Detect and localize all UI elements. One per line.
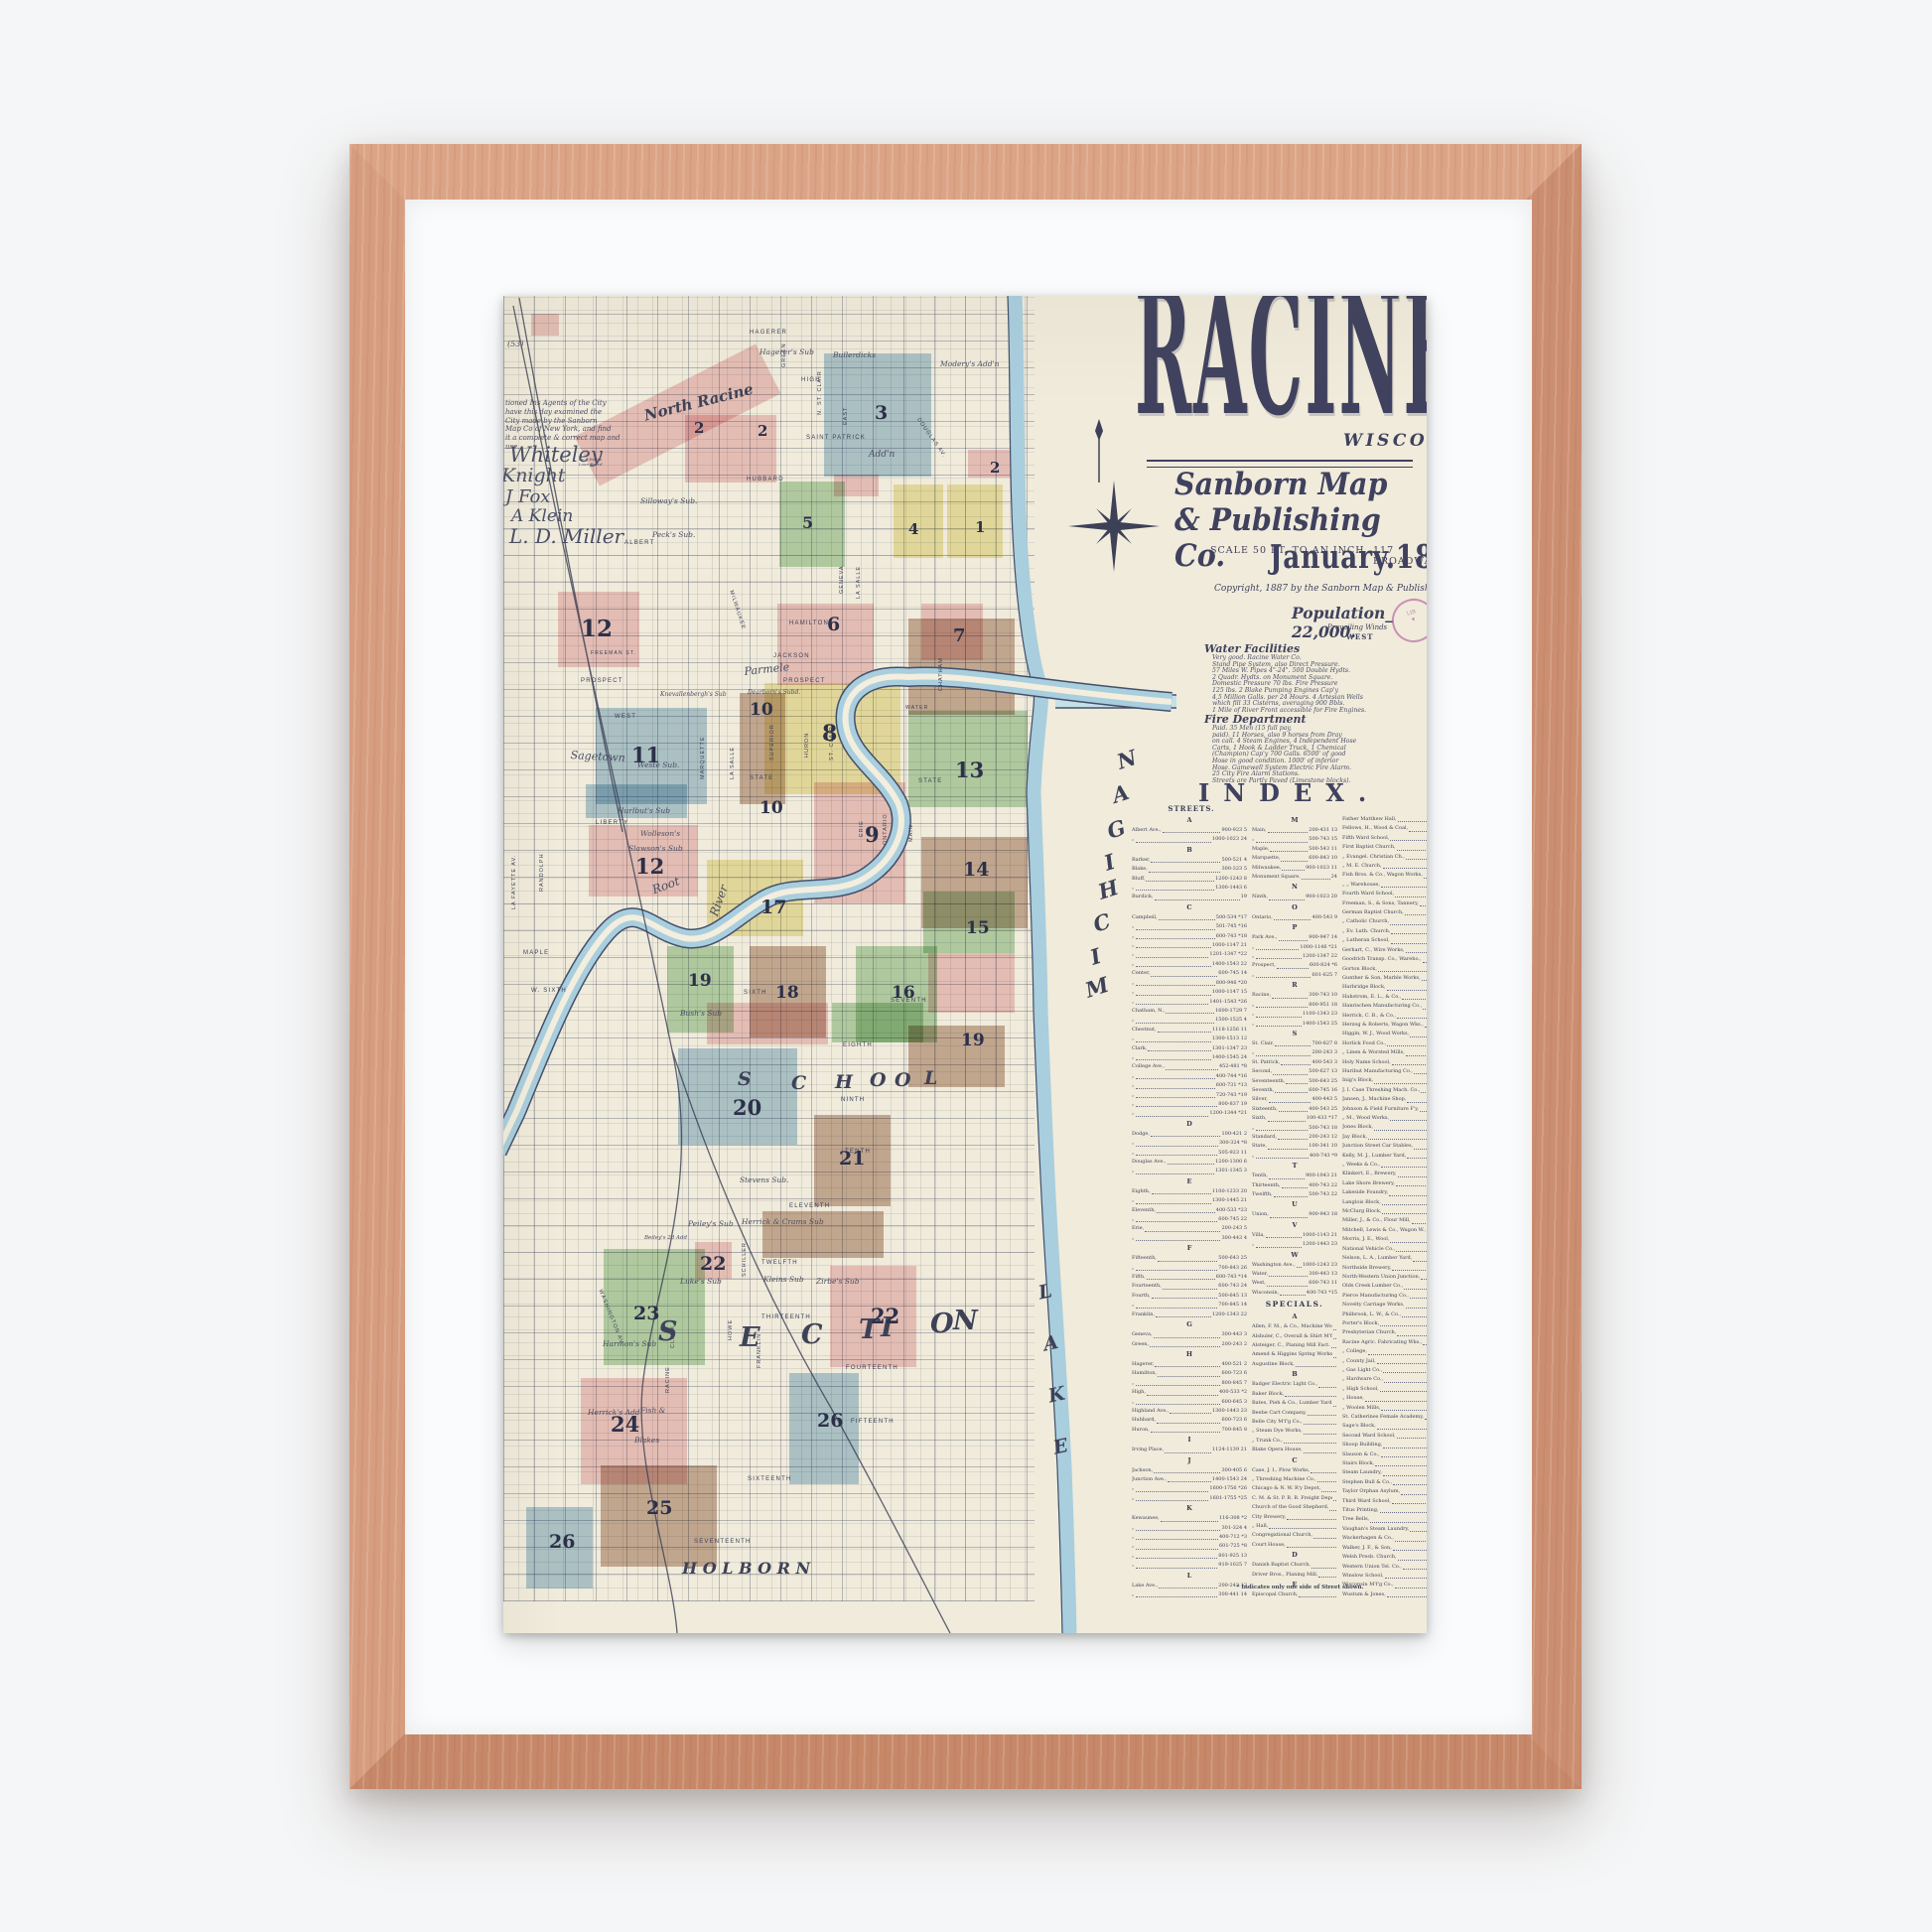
index-row: „ County Jail,13 bbox=[1342, 1357, 1427, 1366]
index-cell: Chicago & N. W. R'y Depot, bbox=[1252, 1484, 1320, 1493]
index-row: Langlois Block,13 bbox=[1342, 1198, 1427, 1207]
index-cell: „ bbox=[1252, 1001, 1255, 1010]
index-cell bbox=[1414, 1073, 1427, 1074]
index-cell bbox=[1387, 1596, 1427, 1597]
index-cell: 300-443 13 bbox=[1309, 1270, 1337, 1279]
index-cell bbox=[1256, 949, 1300, 950]
index-cell: Franklin, bbox=[1132, 1311, 1155, 1319]
index-cell bbox=[1136, 1240, 1221, 1241]
street-label: HOWE bbox=[728, 1319, 734, 1340]
index-cell bbox=[1256, 1130, 1309, 1131]
index-row: Holy Name School,9 bbox=[1342, 1058, 1427, 1067]
index-row: Bates, Pieh & Co., Lumber Yard bbox=[1252, 1399, 1337, 1408]
fire-department-text: Paid. 35 Men (15 full pay,paid). 11 Hors… bbox=[1212, 726, 1356, 784]
index-row: Taylor Orphan Asylum,26 bbox=[1342, 1487, 1427, 1496]
handwritten-note: Whiteley bbox=[509, 443, 603, 467]
index-row: „300-324 *8 bbox=[1132, 1139, 1247, 1148]
index-row: Geneva,300-443 3 bbox=[1132, 1330, 1247, 1339]
index-row: Huron,700-845 8 bbox=[1132, 1426, 1247, 1435]
index-row: College Ave.,452-481 *8 bbox=[1132, 1062, 1247, 1071]
district-number: 12 bbox=[635, 854, 664, 879]
index-cell: 1100-1343 23 bbox=[1303, 1010, 1337, 1019]
index-cell bbox=[1161, 1521, 1218, 1522]
index-section-letter: S bbox=[1252, 1029, 1337, 1039]
index-cell bbox=[1392, 1064, 1427, 1065]
index-cell: Racine Agric. Fabricating Wks., bbox=[1342, 1338, 1422, 1347]
index-cell bbox=[1412, 1223, 1427, 1224]
index-column-3: Father Matthew Hall,11Fellows, H., Wood … bbox=[1342, 815, 1427, 1599]
index-row: „1100-1343 23 bbox=[1252, 1010, 1337, 1019]
district-number: 15 bbox=[966, 918, 990, 938]
street-label: LA SALLE bbox=[856, 566, 862, 599]
area-name-letter: O bbox=[895, 1069, 911, 1091]
index-cell: 1400-1543 22 bbox=[1212, 960, 1247, 969]
index-cell: Herzog & Roberts, Wagon Wks., bbox=[1342, 1021, 1424, 1030]
index-cell: 500-645 13 bbox=[1218, 1292, 1247, 1301]
index-row: „ High School,12 bbox=[1342, 1385, 1427, 1394]
index-row: Maple,500-543 11 bbox=[1252, 845, 1337, 854]
index-cell: 301-324 4 bbox=[1221, 1524, 1247, 1533]
index-cell: 1400-1545 24 bbox=[1212, 1053, 1247, 1062]
district-number: 26 bbox=[817, 1410, 843, 1432]
index-section-letter: J bbox=[1132, 1455, 1247, 1466]
index-row: Welsh Presb. Church,12 bbox=[1342, 1553, 1427, 1562]
index-cell: 919-1025 7 bbox=[1218, 1561, 1247, 1570]
index-cell: Seventh, bbox=[1252, 1086, 1274, 1095]
index-cell: Albert Ave., bbox=[1132, 826, 1162, 835]
index-cell bbox=[1425, 1419, 1427, 1420]
index-cell bbox=[1398, 1176, 1427, 1177]
index-cell: Case, J. I., Plow Works, bbox=[1252, 1466, 1310, 1475]
index-cell bbox=[1136, 1549, 1218, 1550]
index-row: Harbridge Block,14 bbox=[1342, 983, 1427, 992]
index-row: Prospect,600-824 *6 bbox=[1252, 961, 1337, 970]
subdivision-label: Harmon's Sub bbox=[603, 1339, 656, 1348]
index-cell: „ bbox=[1132, 1590, 1135, 1599]
index-row: Seventh,600-745 16 bbox=[1252, 1086, 1337, 1095]
index-cell bbox=[1377, 1363, 1427, 1364]
index-cell: Gerhart, C., Wire Works, bbox=[1342, 946, 1405, 955]
index-row: Episcopal Church, bbox=[1252, 1590, 1337, 1599]
index-row: McClurg Block,14 bbox=[1342, 1207, 1427, 1216]
subdivision-label: Herrick & Crams Sub bbox=[742, 1217, 824, 1226]
index-cell: National Vehicle Co., bbox=[1342, 1245, 1395, 1254]
index-cell: Dodge, bbox=[1132, 1130, 1150, 1139]
index-cell bbox=[1136, 947, 1211, 948]
index-row: Park Ave.,900-947 14 bbox=[1252, 933, 1337, 942]
index-cell bbox=[1136, 1539, 1218, 1540]
index-cell: 600-745 16 bbox=[1309, 1086, 1337, 1095]
index-row: Western Union Tel. Co.,14 bbox=[1342, 1563, 1427, 1572]
index-cell: 400-521 2 bbox=[1221, 1360, 1247, 1369]
index-cell: Church of the Good Shepherd, bbox=[1252, 1503, 1328, 1512]
index-cell bbox=[1281, 861, 1308, 862]
index-cell: Fellows, H., Wood & Coal, bbox=[1342, 824, 1408, 833]
index-row: Johnson & Field Furniture F'y,16 bbox=[1342, 1105, 1427, 1114]
index-cell: Father Matthew Hall, bbox=[1342, 815, 1397, 824]
street-label: SUPERIOR bbox=[769, 724, 775, 760]
index-row: Fourth Ward School,6 bbox=[1342, 890, 1427, 898]
index-row: Fifth,600-743 *14 bbox=[1132, 1273, 1247, 1282]
index-cell: „ bbox=[1132, 1016, 1135, 1025]
index-cell: Main, bbox=[1252, 826, 1267, 835]
index-cell: 1300-1443 6 bbox=[1215, 884, 1247, 893]
index-cell: „ bbox=[1132, 1561, 1135, 1570]
index-cell: „ bbox=[1252, 1240, 1255, 1249]
index-cell: „ Linen & Worsted Mills, bbox=[1342, 1048, 1405, 1057]
street-label: LA SALLE bbox=[730, 747, 736, 779]
index-row: Walker, J. F., & Son,13 bbox=[1342, 1544, 1427, 1553]
index-cell: Washington Ave., bbox=[1252, 1261, 1296, 1270]
index-row: Court House, bbox=[1252, 1541, 1337, 1550]
index-row: Junction Ave.,1400-1543 24 bbox=[1132, 1475, 1247, 1484]
index-row: „601-625 7 bbox=[1252, 971, 1337, 980]
index-cell: 24 bbox=[1331, 873, 1337, 882]
street-label: MARQUETTE bbox=[700, 736, 706, 779]
street-label: NINTH bbox=[841, 1097, 865, 1103]
index-cell: 100-341 10 bbox=[1309, 1142, 1337, 1151]
street-label: PROSPECT bbox=[783, 678, 826, 684]
index-row: North-Western Union Junction,23 bbox=[1342, 1273, 1427, 1282]
index-cell: Irving Place, bbox=[1132, 1446, 1164, 1454]
index-cell bbox=[1401, 1494, 1427, 1495]
index-row: Huribut Manufacturing Co.,11 bbox=[1342, 1067, 1427, 1076]
index-cell: Prospect, bbox=[1252, 961, 1276, 970]
index-cell: „ bbox=[1132, 988, 1135, 997]
street-label: CHATHAM bbox=[938, 657, 944, 691]
area-name-letter: O bbox=[930, 1309, 954, 1339]
index-cell: Second, bbox=[1252, 1067, 1272, 1076]
index-row: Douglas Ave.,1200-1300 6 bbox=[1132, 1158, 1247, 1167]
index-row: „801-925 13 bbox=[1132, 1552, 1247, 1561]
index-cell: 500-743 15 bbox=[1309, 835, 1337, 844]
index-row: „ Woolen Mills,10 bbox=[1342, 1404, 1427, 1413]
index-cell: Congregational Church, bbox=[1252, 1531, 1312, 1540]
index-cell: „ bbox=[1132, 1264, 1135, 1273]
index-cell bbox=[1136, 938, 1215, 939]
index-cell: Stairs Block, bbox=[1342, 1459, 1374, 1468]
index-cell bbox=[1158, 1032, 1211, 1033]
index-cell: „ bbox=[1132, 1301, 1135, 1310]
index-row: „800-946 *20 bbox=[1132, 979, 1247, 988]
index-cell bbox=[1136, 1106, 1218, 1107]
index-row: „601-725 *8 bbox=[1132, 1542, 1247, 1551]
subdivision-label: Zirbe's Sub bbox=[816, 1277, 860, 1286]
street-label: ONTARIO bbox=[883, 813, 889, 845]
index-cell: Chatham, N., bbox=[1132, 1007, 1165, 1016]
index-cell bbox=[1151, 1136, 1220, 1137]
index-row: Junction Street Car Stables,24 bbox=[1342, 1142, 1427, 1151]
index-row: Second Ward School,7 bbox=[1342, 1432, 1427, 1441]
index-cell: Augustine Block, bbox=[1252, 1360, 1295, 1369]
index-column-2: MMain,200-431 13„500-743 15Maple,500-543… bbox=[1252, 815, 1337, 1599]
index-cell bbox=[1151, 976, 1217, 977]
index-cell: „ bbox=[1132, 941, 1135, 950]
index-cell: „ County Jail, bbox=[1342, 1357, 1376, 1366]
index-row: Tree Bells,13 bbox=[1342, 1515, 1427, 1524]
index-row: Blake Opera House, bbox=[1252, 1446, 1337, 1454]
street-label: N. ST. CLAIR bbox=[817, 370, 823, 415]
index-row: Olds Creek Lumber Co.,16 bbox=[1342, 1282, 1427, 1291]
index-cell bbox=[1168, 1164, 1215, 1165]
index-cell: Baker Block, bbox=[1252, 1390, 1284, 1399]
index-row: Jansen, J., Machine Shop,14 bbox=[1342, 1095, 1427, 1104]
index-cell bbox=[1269, 1528, 1336, 1529]
index-row: Kewaunee,116-308 *2 bbox=[1132, 1514, 1247, 1523]
index-cell bbox=[1422, 980, 1427, 981]
district-number: 9 bbox=[865, 822, 880, 847]
index-cell: Third Ward School, bbox=[1342, 1497, 1391, 1506]
index-cell bbox=[1331, 1347, 1336, 1348]
index-cell: Harbridge Block, bbox=[1342, 983, 1386, 992]
index-cell: 1300-1445 21 bbox=[1212, 1196, 1247, 1205]
index-row: Water,300-443 13 bbox=[1252, 1270, 1337, 1279]
index-cell: Villa, bbox=[1252, 1231, 1265, 1240]
index-cell: „ bbox=[1252, 943, 1255, 952]
index-cell bbox=[1413, 1261, 1427, 1262]
index-cell: „ bbox=[1132, 1542, 1135, 1551]
index-row: „1000-1147 15 bbox=[1132, 988, 1247, 997]
index-cell bbox=[1269, 1178, 1305, 1179]
index-row: „1200-1347 22 bbox=[1252, 952, 1337, 961]
index-cell bbox=[1136, 1116, 1209, 1117]
index-cell: Standard, bbox=[1252, 1133, 1277, 1142]
index-cell: 600-645 3 bbox=[1221, 1398, 1247, 1407]
index-cell bbox=[1136, 985, 1215, 986]
district-number: 12 bbox=[581, 616, 613, 642]
index-cell: Kelly, M. J., Lumber Yard, bbox=[1342, 1152, 1406, 1161]
index-row: Silver,400-443 5 bbox=[1252, 1095, 1337, 1104]
index-cell: Geneva, bbox=[1132, 1330, 1153, 1339]
index-row: Eleventh,400-533 *23 bbox=[1132, 1206, 1247, 1215]
index-cell bbox=[1148, 1050, 1210, 1051]
index-cell bbox=[1256, 1158, 1309, 1159]
index-cell: 200-243 5 bbox=[1221, 1224, 1247, 1233]
subdivision-label: (53) bbox=[507, 340, 523, 348]
index-cell bbox=[1390, 1242, 1427, 1243]
index-cell bbox=[1279, 940, 1309, 941]
index-cell: 1200-1347 22 bbox=[1303, 952, 1337, 961]
index-cell: Tenth, bbox=[1252, 1172, 1268, 1180]
index-section-letter: B bbox=[1252, 1369, 1337, 1380]
index-row: „1400-1545 24 bbox=[1132, 1053, 1247, 1062]
index-cell bbox=[1136, 1097, 1215, 1098]
index-row: „301-324 4 bbox=[1132, 1524, 1247, 1533]
index-row: „ House,13 bbox=[1342, 1394, 1427, 1403]
index-cell bbox=[1147, 1279, 1215, 1280]
index-cell: „ bbox=[1132, 1035, 1135, 1043]
index-row: Stairs Block,13 bbox=[1342, 1459, 1427, 1468]
index-cell: „ Weeks & Co., bbox=[1342, 1161, 1380, 1170]
index-cell bbox=[1136, 1173, 1214, 1174]
index-section-letter: P bbox=[1252, 922, 1337, 933]
index-cell: Gorton Block, bbox=[1342, 965, 1377, 974]
index-cell bbox=[1155, 899, 1240, 900]
index-row: Hagerer,400-521 2 bbox=[1132, 1360, 1247, 1369]
index-cell: 800-951 18 bbox=[1309, 1001, 1337, 1010]
index-cell: „ bbox=[1132, 1398, 1135, 1407]
index-cell bbox=[1256, 1007, 1309, 1008]
index-cell: 1300-1513 12 bbox=[1212, 1035, 1247, 1043]
index-cell: Green, bbox=[1132, 1340, 1149, 1349]
index-cell: Milwaukee, bbox=[1252, 864, 1281, 873]
index-cell bbox=[1392, 1503, 1427, 1504]
subdivision-label: Bullerdicks bbox=[833, 350, 876, 359]
specials-header: SPECIALS. bbox=[1252, 1298, 1337, 1311]
index-cell: Pierce Manufacturing Co., bbox=[1342, 1292, 1409, 1301]
index-section-letter: F bbox=[1132, 1243, 1247, 1254]
index-cell bbox=[1166, 1013, 1214, 1014]
index-cell: 801-925 13 bbox=[1218, 1552, 1247, 1561]
compass-rose-icon bbox=[1068, 481, 1160, 572]
index-cell bbox=[1383, 868, 1427, 869]
index-cell bbox=[1136, 1041, 1211, 1042]
index-cell bbox=[1152, 1298, 1218, 1299]
index-cell bbox=[1151, 862, 1220, 863]
district-number: 8 bbox=[822, 721, 837, 747]
index-cell: Hamilton, bbox=[1132, 1369, 1157, 1378]
index-row: „ Threshing Machine Co., bbox=[1252, 1475, 1337, 1484]
index-cell: „ bbox=[1132, 884, 1135, 893]
index-cell: Lake Shore Brewery, bbox=[1342, 1179, 1395, 1188]
subdivision-label: Slawson's Sub bbox=[628, 844, 683, 853]
index-cell: Badger Electric Light Co., bbox=[1252, 1380, 1317, 1389]
map-sheet: HAGERERHIGHSAINT PATRICKALBERTFREEMAN ST… bbox=[503, 296, 1427, 1633]
street-label: JACKSON bbox=[773, 653, 810, 659]
index-row: Eighth,1100-1233 20 bbox=[1132, 1187, 1247, 1196]
index-cell: Vaughan's Steam Laundry, bbox=[1342, 1525, 1409, 1534]
index-row: Novelty Carriage Works,18 bbox=[1342, 1301, 1427, 1310]
index-cell bbox=[1329, 1510, 1336, 1511]
index-cell bbox=[1147, 1395, 1218, 1396]
index-cell: Erie, bbox=[1132, 1224, 1144, 1233]
index-row: Union,900-943 18 bbox=[1252, 1210, 1337, 1219]
street-label: MAPLE bbox=[523, 950, 549, 956]
index-cell: Walker, J. F., & Son, bbox=[1342, 1544, 1392, 1553]
index-row: „1300-1445 21 bbox=[1132, 1196, 1247, 1205]
index-cell: 300-323 5 bbox=[1221, 865, 1247, 874]
index-cell: „ bbox=[1132, 1091, 1135, 1100]
index-row: „501-745 *16 bbox=[1132, 922, 1247, 931]
index-cell bbox=[1281, 1064, 1311, 1065]
index-row: Inig's Block,15 bbox=[1342, 1076, 1427, 1085]
index-cell bbox=[1282, 1187, 1309, 1188]
index-row: „300-443 4 bbox=[1132, 1234, 1247, 1243]
index-cell: 300-443 3 bbox=[1221, 1330, 1247, 1339]
index-cell bbox=[1424, 878, 1427, 879]
index-row: Alsteiger, C., Planing Mill Fact. bbox=[1252, 1341, 1337, 1350]
index-row: Barker,500-521 4 bbox=[1132, 856, 1247, 865]
index-cell bbox=[1268, 832, 1309, 833]
index-row: Amend & Higgins Spring Works bbox=[1252, 1350, 1337, 1359]
index-row: Racine Agric. Fabricating Wks.,22 bbox=[1342, 1338, 1427, 1347]
index-row: Wustum & Jones,13 bbox=[1342, 1590, 1427, 1599]
index-cell: 200-243 12 bbox=[1309, 1133, 1337, 1142]
index-row: Main,200-431 13 bbox=[1252, 826, 1337, 835]
index-row: Sixth,100-433 *17 bbox=[1252, 1114, 1337, 1123]
index-cell bbox=[1333, 1338, 1336, 1339]
index-cell: Klinkert, E., Brewery, bbox=[1342, 1170, 1397, 1178]
index-row: Case, J. I., Plow Works, bbox=[1252, 1466, 1337, 1475]
index-row: „ Hall, bbox=[1252, 1522, 1337, 1531]
subdivision-label: Dearborn's Subd. bbox=[748, 689, 800, 696]
subdivision-label: Beiley's 2d Add bbox=[644, 1235, 687, 1241]
index-cell bbox=[1266, 1237, 1302, 1238]
index-cell: Monument Square, bbox=[1252, 873, 1301, 882]
index-cell: 1124-1139 21 bbox=[1212, 1446, 1247, 1454]
index-section-letter: I bbox=[1132, 1435, 1247, 1446]
index-row: Ninth,900-1023 20 bbox=[1252, 893, 1337, 901]
index-cell: West, bbox=[1252, 1279, 1266, 1288]
index-cell: Seventeenth, bbox=[1252, 1077, 1285, 1086]
index-cell: 1300-1443 23 bbox=[1212, 1407, 1247, 1416]
framed-map-poster-photo: HAGERERHIGHSAINT PATRICKALBERTFREEMAN ST… bbox=[0, 0, 1932, 1932]
street-label: SCHILLER bbox=[742, 1242, 748, 1277]
index-cell: College Ave., bbox=[1132, 1062, 1165, 1071]
handwritten-note: L. D. Miller bbox=[509, 524, 623, 548]
index-cell bbox=[1387, 990, 1427, 991]
index-cell: Presbyterian Church, bbox=[1342, 1328, 1396, 1337]
index-cell: Center, bbox=[1132, 969, 1150, 978]
index-cell: „ bbox=[1252, 835, 1255, 844]
index-row: Northside Brewery,2 bbox=[1342, 1264, 1427, 1273]
index-cell bbox=[1287, 1547, 1336, 1548]
index-cell: 600-743 *18 bbox=[1216, 932, 1247, 941]
index-row: „1601-1755 *25 bbox=[1132, 1494, 1247, 1503]
district-number: 19 bbox=[961, 1031, 985, 1050]
index-row: Morris, J. E., Wool,13 bbox=[1342, 1235, 1427, 1244]
street-label: SIXTH bbox=[744, 990, 767, 996]
street-label: HAGERER bbox=[750, 330, 787, 336]
index-cell bbox=[1389, 1195, 1427, 1196]
index-cell: „ bbox=[1252, 1152, 1255, 1161]
index-cell: Wackerhagen & Co., bbox=[1342, 1534, 1394, 1543]
index-cell bbox=[1384, 1382, 1427, 1383]
index-row: Herzog & Roberts, Wagon Wks.,17 bbox=[1342, 1021, 1427, 1030]
index-cell: 400-543 9 bbox=[1311, 913, 1337, 922]
index-row: Standard,200-243 12 bbox=[1252, 1133, 1337, 1142]
index-cell: Slauson & Co., bbox=[1342, 1450, 1380, 1459]
index-cell bbox=[1406, 952, 1427, 953]
index-section-letter: E bbox=[1132, 1176, 1247, 1187]
index-cell: „ bbox=[1252, 1124, 1255, 1133]
index-cell: „ M. E. Church, bbox=[1342, 862, 1382, 871]
index-row: Steam Laundry,15 bbox=[1342, 1468, 1427, 1477]
index-cell: „ „ Warehouse, bbox=[1342, 881, 1380, 890]
index-cell bbox=[1284, 1443, 1336, 1444]
copyright-label: Copyright, 1887 by the Sanborn Map & Pub… bbox=[1214, 584, 1427, 594]
index-cell bbox=[1136, 1059, 1211, 1060]
index-cell: 300-743 10 bbox=[1309, 991, 1337, 1000]
index-cell bbox=[1311, 1568, 1336, 1569]
index-cell: C. M. & St. P. R. R. Freight Depot, bbox=[1252, 1494, 1332, 1503]
district-number: 10 bbox=[759, 798, 783, 818]
index-cell: Marquette, bbox=[1252, 854, 1280, 863]
index-cell bbox=[1170, 1413, 1211, 1414]
index-row: „1200-1443 23 bbox=[1252, 1240, 1337, 1249]
district-number: 3 bbox=[875, 402, 888, 424]
index-cell: Sage's Block, bbox=[1342, 1422, 1376, 1431]
index-row: „400-743 *9 bbox=[1252, 1152, 1337, 1161]
index-cell bbox=[1136, 1203, 1211, 1204]
index-cell bbox=[1136, 1078, 1215, 1079]
index-cell bbox=[1392, 1270, 1427, 1271]
index-row: Church of the Good Shepherd, bbox=[1252, 1503, 1337, 1512]
index-row: Gunther & Son, Marble Works,15 bbox=[1342, 974, 1427, 983]
index-section-letter: G bbox=[1132, 1319, 1247, 1330]
index-cell: „ Steam Dye Works, bbox=[1252, 1427, 1303, 1436]
index-cell bbox=[1297, 1267, 1302, 1268]
